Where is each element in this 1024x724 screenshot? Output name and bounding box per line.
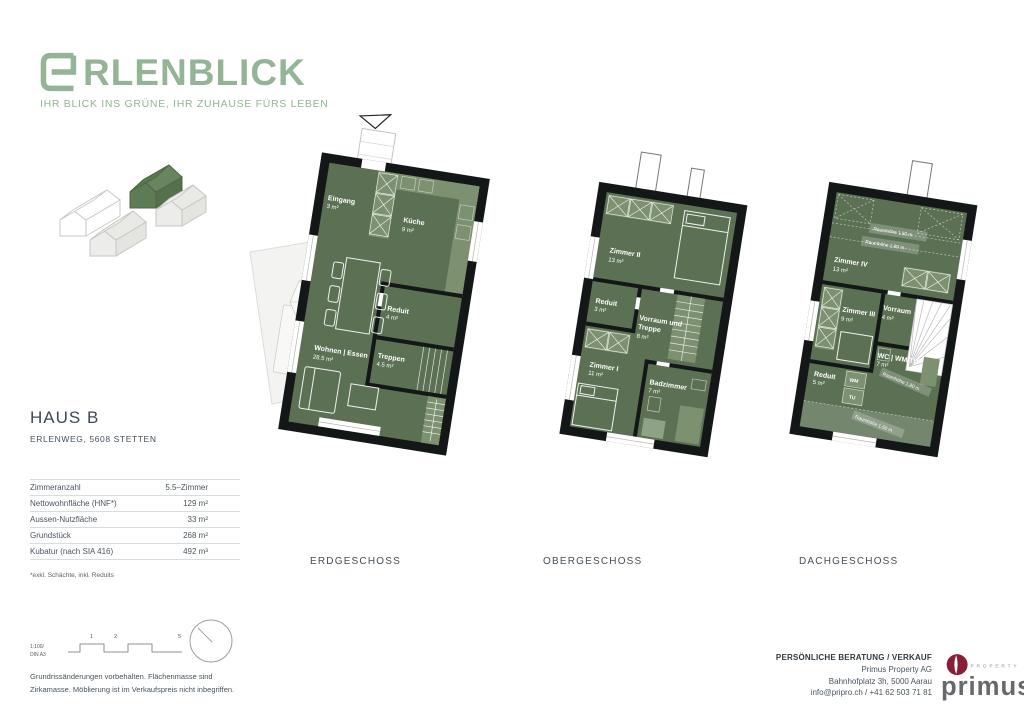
- spec-value: 492 m³: [183, 547, 208, 556]
- scale-mark: 5: [178, 634, 181, 640]
- brand-tagline: IHR BLICK INS GRÜNE, IHR ZUHAUSE FÜRS LE…: [40, 98, 329, 110]
- table-row: Kubatur (nach SIA 416) 492 m³: [30, 544, 240, 560]
- primus-property-label: PROPERTY: [970, 663, 1019, 669]
- spec-value: 5.5–Zimmer: [165, 483, 208, 492]
- floor-label-erdgeschoss: ERDGESCHOSS: [310, 556, 401, 567]
- table-row: Nettowohnfläche (HNF*) 129 m²: [30, 496, 240, 512]
- property-address: ERLENWEG, 5608 STETTEN: [30, 434, 157, 444]
- scale-bar: 1:100/ DIN A3 1 2 5: [28, 622, 188, 670]
- spec-label: Nettowohnfläche (HNF*): [30, 499, 183, 508]
- scale-format: DIN A3: [30, 652, 46, 658]
- floorplan-obergeschoss: Zimmer II 13 m² Reduit 3 m² Vorraum und …: [533, 132, 773, 467]
- chimney-icon: [687, 168, 705, 200]
- contact-heading: PERSÖNLICHE BERATUNG / VERKAUF: [776, 653, 932, 662]
- table-footnote: *exkl. Schächte, inkl. Reduits: [30, 572, 114, 579]
- brand-logo: RLENBLICK IHR BLICK INS GRÜNE, IHR ZUHAU…: [38, 50, 329, 110]
- contact-phone: info@pripro.ch / +41 62 503 71 81: [776, 687, 932, 699]
- scale-ratio: 1:100/: [30, 644, 45, 650]
- table-row: Aussen-Nutzfläche 33 m²: [30, 512, 240, 528]
- spec-label: Grundstück: [30, 531, 183, 540]
- brand-wordmark: RLENBLICK: [83, 54, 306, 91]
- primus-logo: PROPERTY primus: [940, 650, 1020, 704]
- north-compass-icon: [186, 616, 236, 666]
- chimney-icon: [635, 152, 661, 193]
- spec-value: 129 m²: [183, 499, 208, 508]
- page-title: HAUS B: [30, 408, 99, 428]
- spec-label: Zimmeranzahl: [30, 483, 165, 492]
- contact-block: PERSÖNLICHE BERATUNG / VERKAUF Primus Pr…: [776, 653, 932, 699]
- erlenblick-e-icon: [38, 50, 78, 94]
- spec-value: 33 m²: [188, 515, 208, 524]
- disclaimer-line: Zirkamasse. Möblierung ist im Verkaufspr…: [30, 683, 234, 696]
- contact-company: Primus Property AG: [776, 664, 932, 676]
- floorplan-erdgeschoss: Eingang 3 m² Küche 9 m² Reduit 4 m² Trep…: [232, 112, 532, 462]
- disclaimer: Grundrissänderungen vorbehalten. Flächen…: [30, 670, 234, 696]
- floor-label-obergeschoss: OBERGESCHOSS: [543, 556, 642, 567]
- spec-label: Aussen-Nutzfläche: [30, 515, 188, 524]
- floorplan-dachgeschoss: Raumhöhe 1.50 m Raumhöhe 1.80 m: [763, 132, 1003, 467]
- spec-table: Zimmeranzahl 5.5–Zimmer Nettowohnfläche …: [30, 479, 240, 560]
- scale-mark: 2: [114, 634, 117, 640]
- table-row: Grundstück 268 m²: [30, 528, 240, 544]
- spec-label: Kubatur (nach SIA 416): [30, 547, 183, 556]
- scale-mark: 1: [90, 634, 93, 640]
- disclaimer-line: Grundrissänderungen vorbehalten. Flächen…: [30, 670, 234, 683]
- chimney-icon: [907, 161, 932, 200]
- brochure-page: RLENBLICK IHR BLICK INS GRÜNE, IHR ZUHAU…: [0, 0, 1024, 724]
- tu-label: TU: [848, 395, 856, 402]
- site-key-plan: [52, 136, 222, 271]
- spec-value: 268 m²: [183, 531, 208, 540]
- scale-bar-line: [68, 644, 182, 652]
- entrance-arrow-icon: [359, 110, 391, 130]
- floor-label-dachgeschoss: DACHGESCHOSS: [799, 556, 898, 567]
- table-row: Zimmeranzahl 5.5–Zimmer: [30, 480, 240, 496]
- contact-address: Bahnhofplatz 3h, 5000 Aarau: [776, 676, 932, 688]
- primus-wordmark: primus: [941, 673, 1024, 701]
